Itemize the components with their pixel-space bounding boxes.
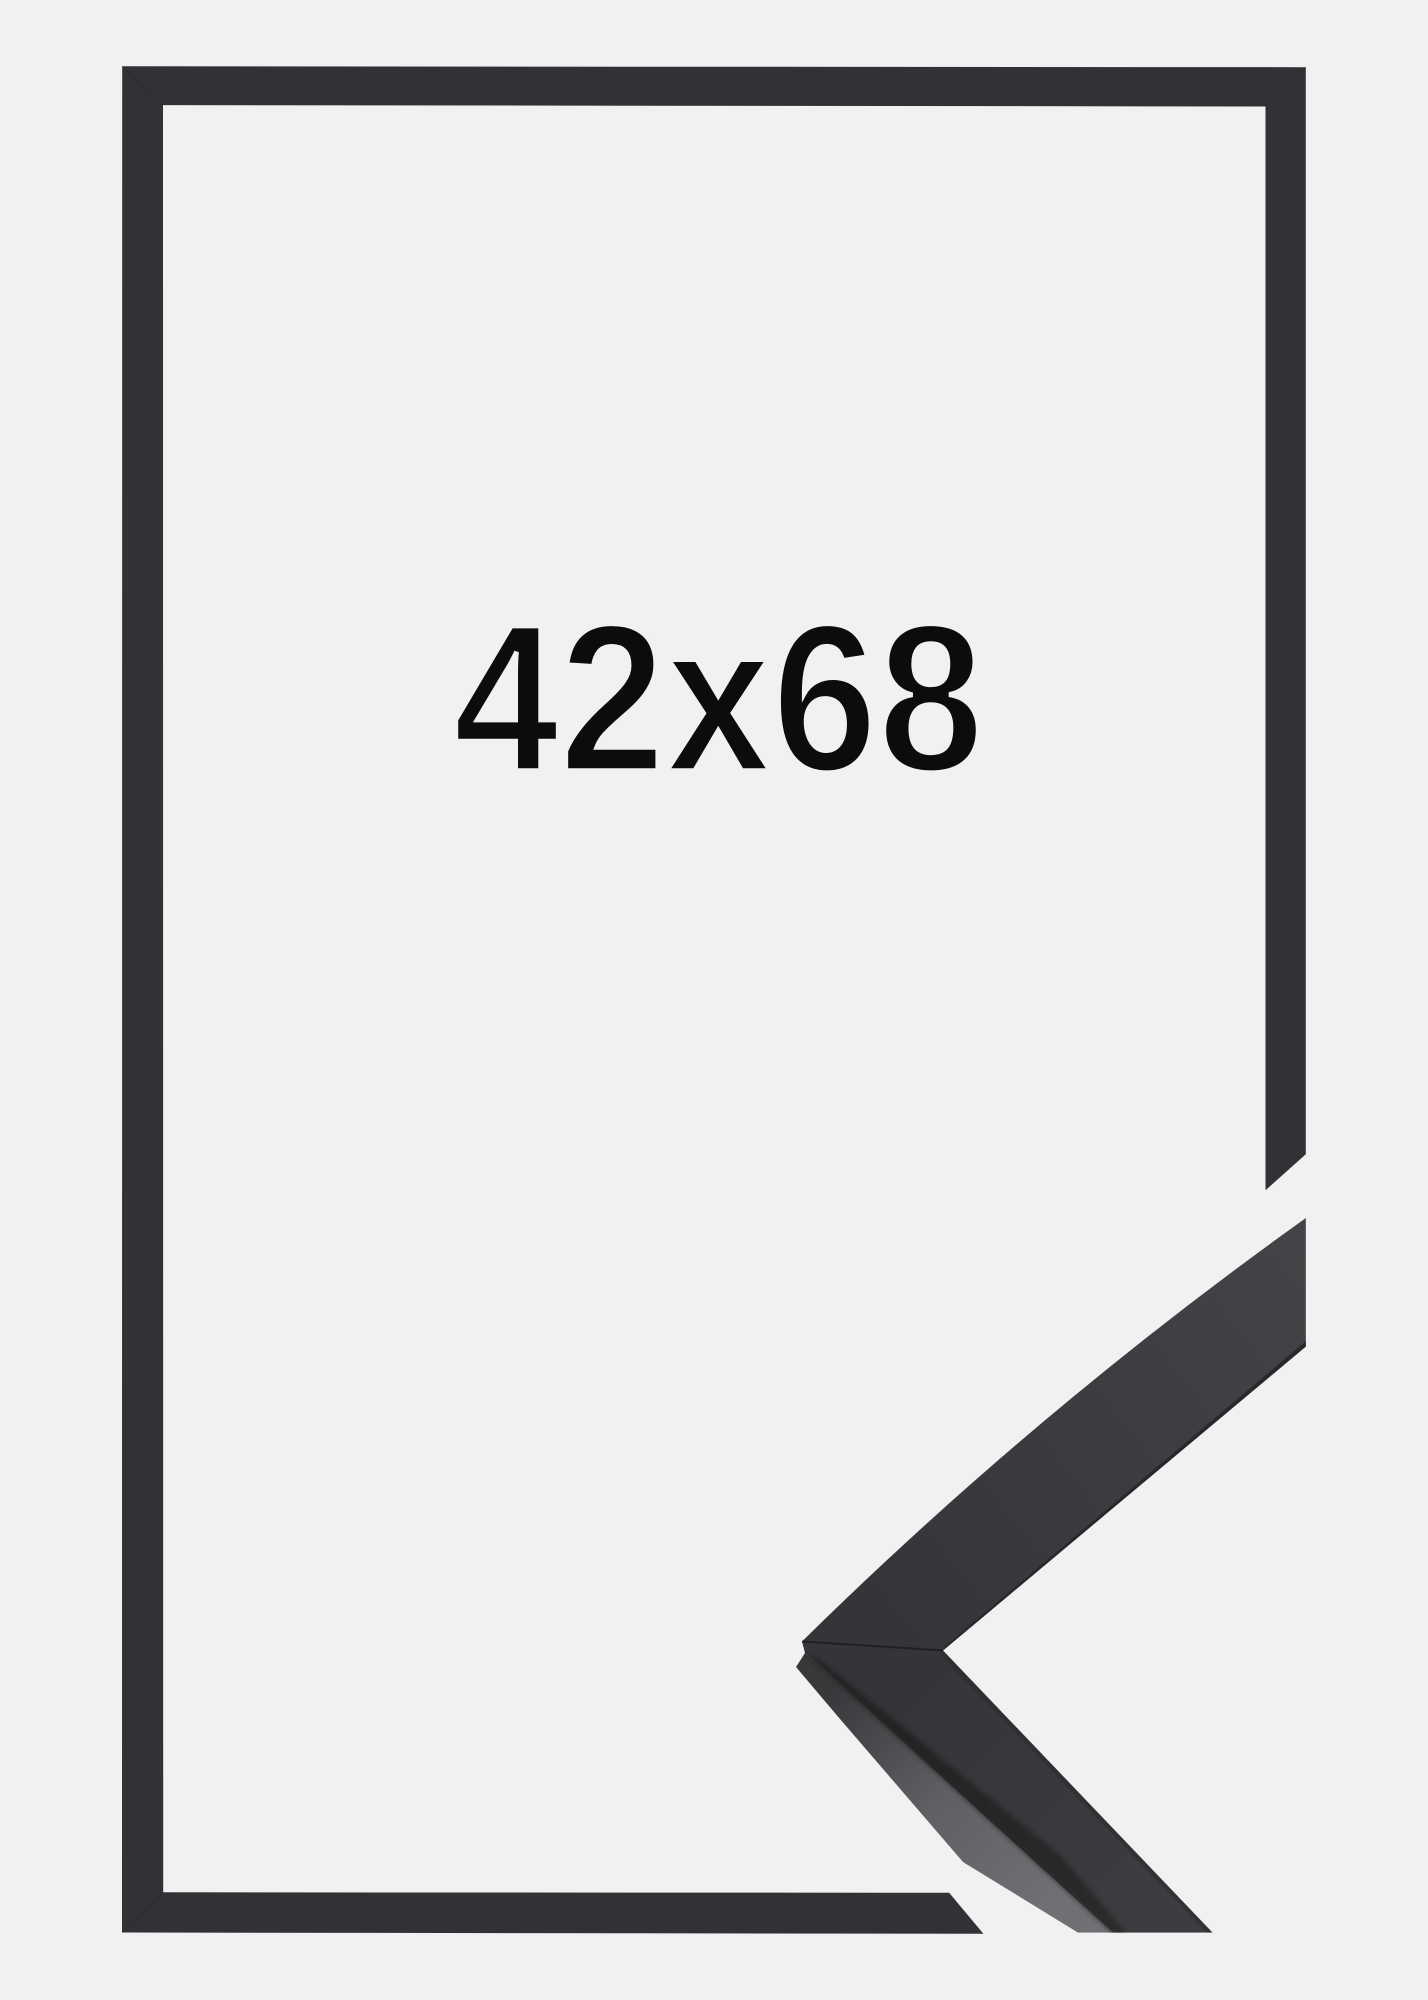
svg-text:42x68: 42x68 <box>453 580 984 816</box>
